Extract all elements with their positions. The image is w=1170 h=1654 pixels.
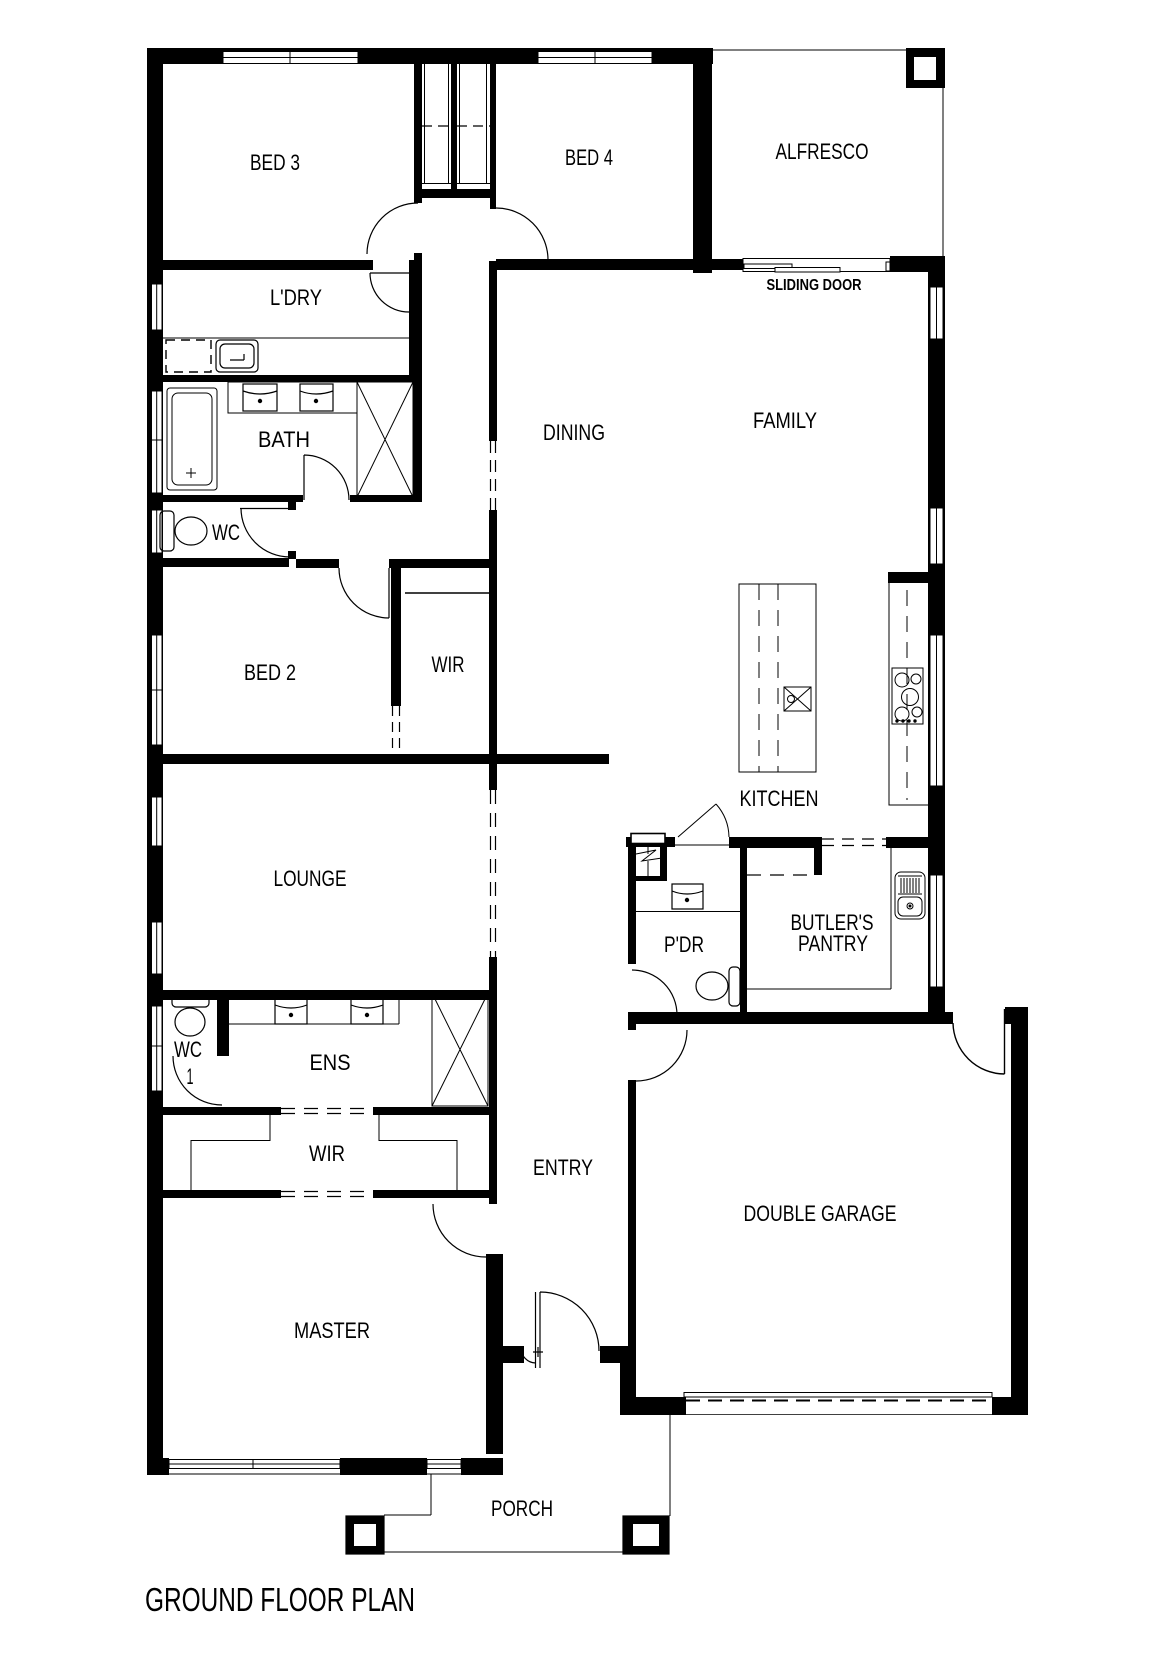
- svg-text:P'DR: P'DR: [664, 932, 704, 957]
- svg-text:BATH: BATH: [258, 427, 310, 452]
- svg-text:1: 1: [187, 1064, 194, 1089]
- svg-text:DOUBLE GARAGE: DOUBLE GARAGE: [744, 1201, 897, 1226]
- svg-text:BED 3: BED 3: [250, 150, 300, 175]
- svg-text:BED 4: BED 4: [565, 145, 613, 170]
- svg-text:WC: WC: [174, 1037, 202, 1062]
- svg-text:LOUNGE: LOUNGE: [274, 866, 347, 891]
- svg-text:MASTER: MASTER: [294, 1318, 370, 1343]
- svg-text:WIR: WIR: [432, 652, 465, 677]
- svg-text:GROUND FLOOR PLAN: GROUND FLOOR PLAN: [145, 1581, 415, 1618]
- svg-text:BED 2: BED 2: [244, 660, 296, 685]
- svg-text:FAMILY: FAMILY: [753, 408, 817, 433]
- svg-text:ENTRY: ENTRY: [533, 1155, 593, 1180]
- svg-text:DINING: DINING: [543, 420, 605, 445]
- svg-text:ALFRESCO: ALFRESCO: [776, 139, 869, 164]
- svg-text:L'DRY: L'DRY: [270, 285, 322, 310]
- svg-text:KITCHEN: KITCHEN: [740, 786, 819, 811]
- svg-text:PANTRY: PANTRY: [798, 931, 868, 956]
- svg-text:WIR: WIR: [309, 1141, 345, 1166]
- svg-text:SLIDING DOOR: SLIDING DOOR: [767, 277, 862, 294]
- svg-text:ENS: ENS: [310, 1050, 351, 1075]
- svg-text:WC: WC: [212, 520, 240, 545]
- svg-text:PORCH: PORCH: [491, 1496, 553, 1521]
